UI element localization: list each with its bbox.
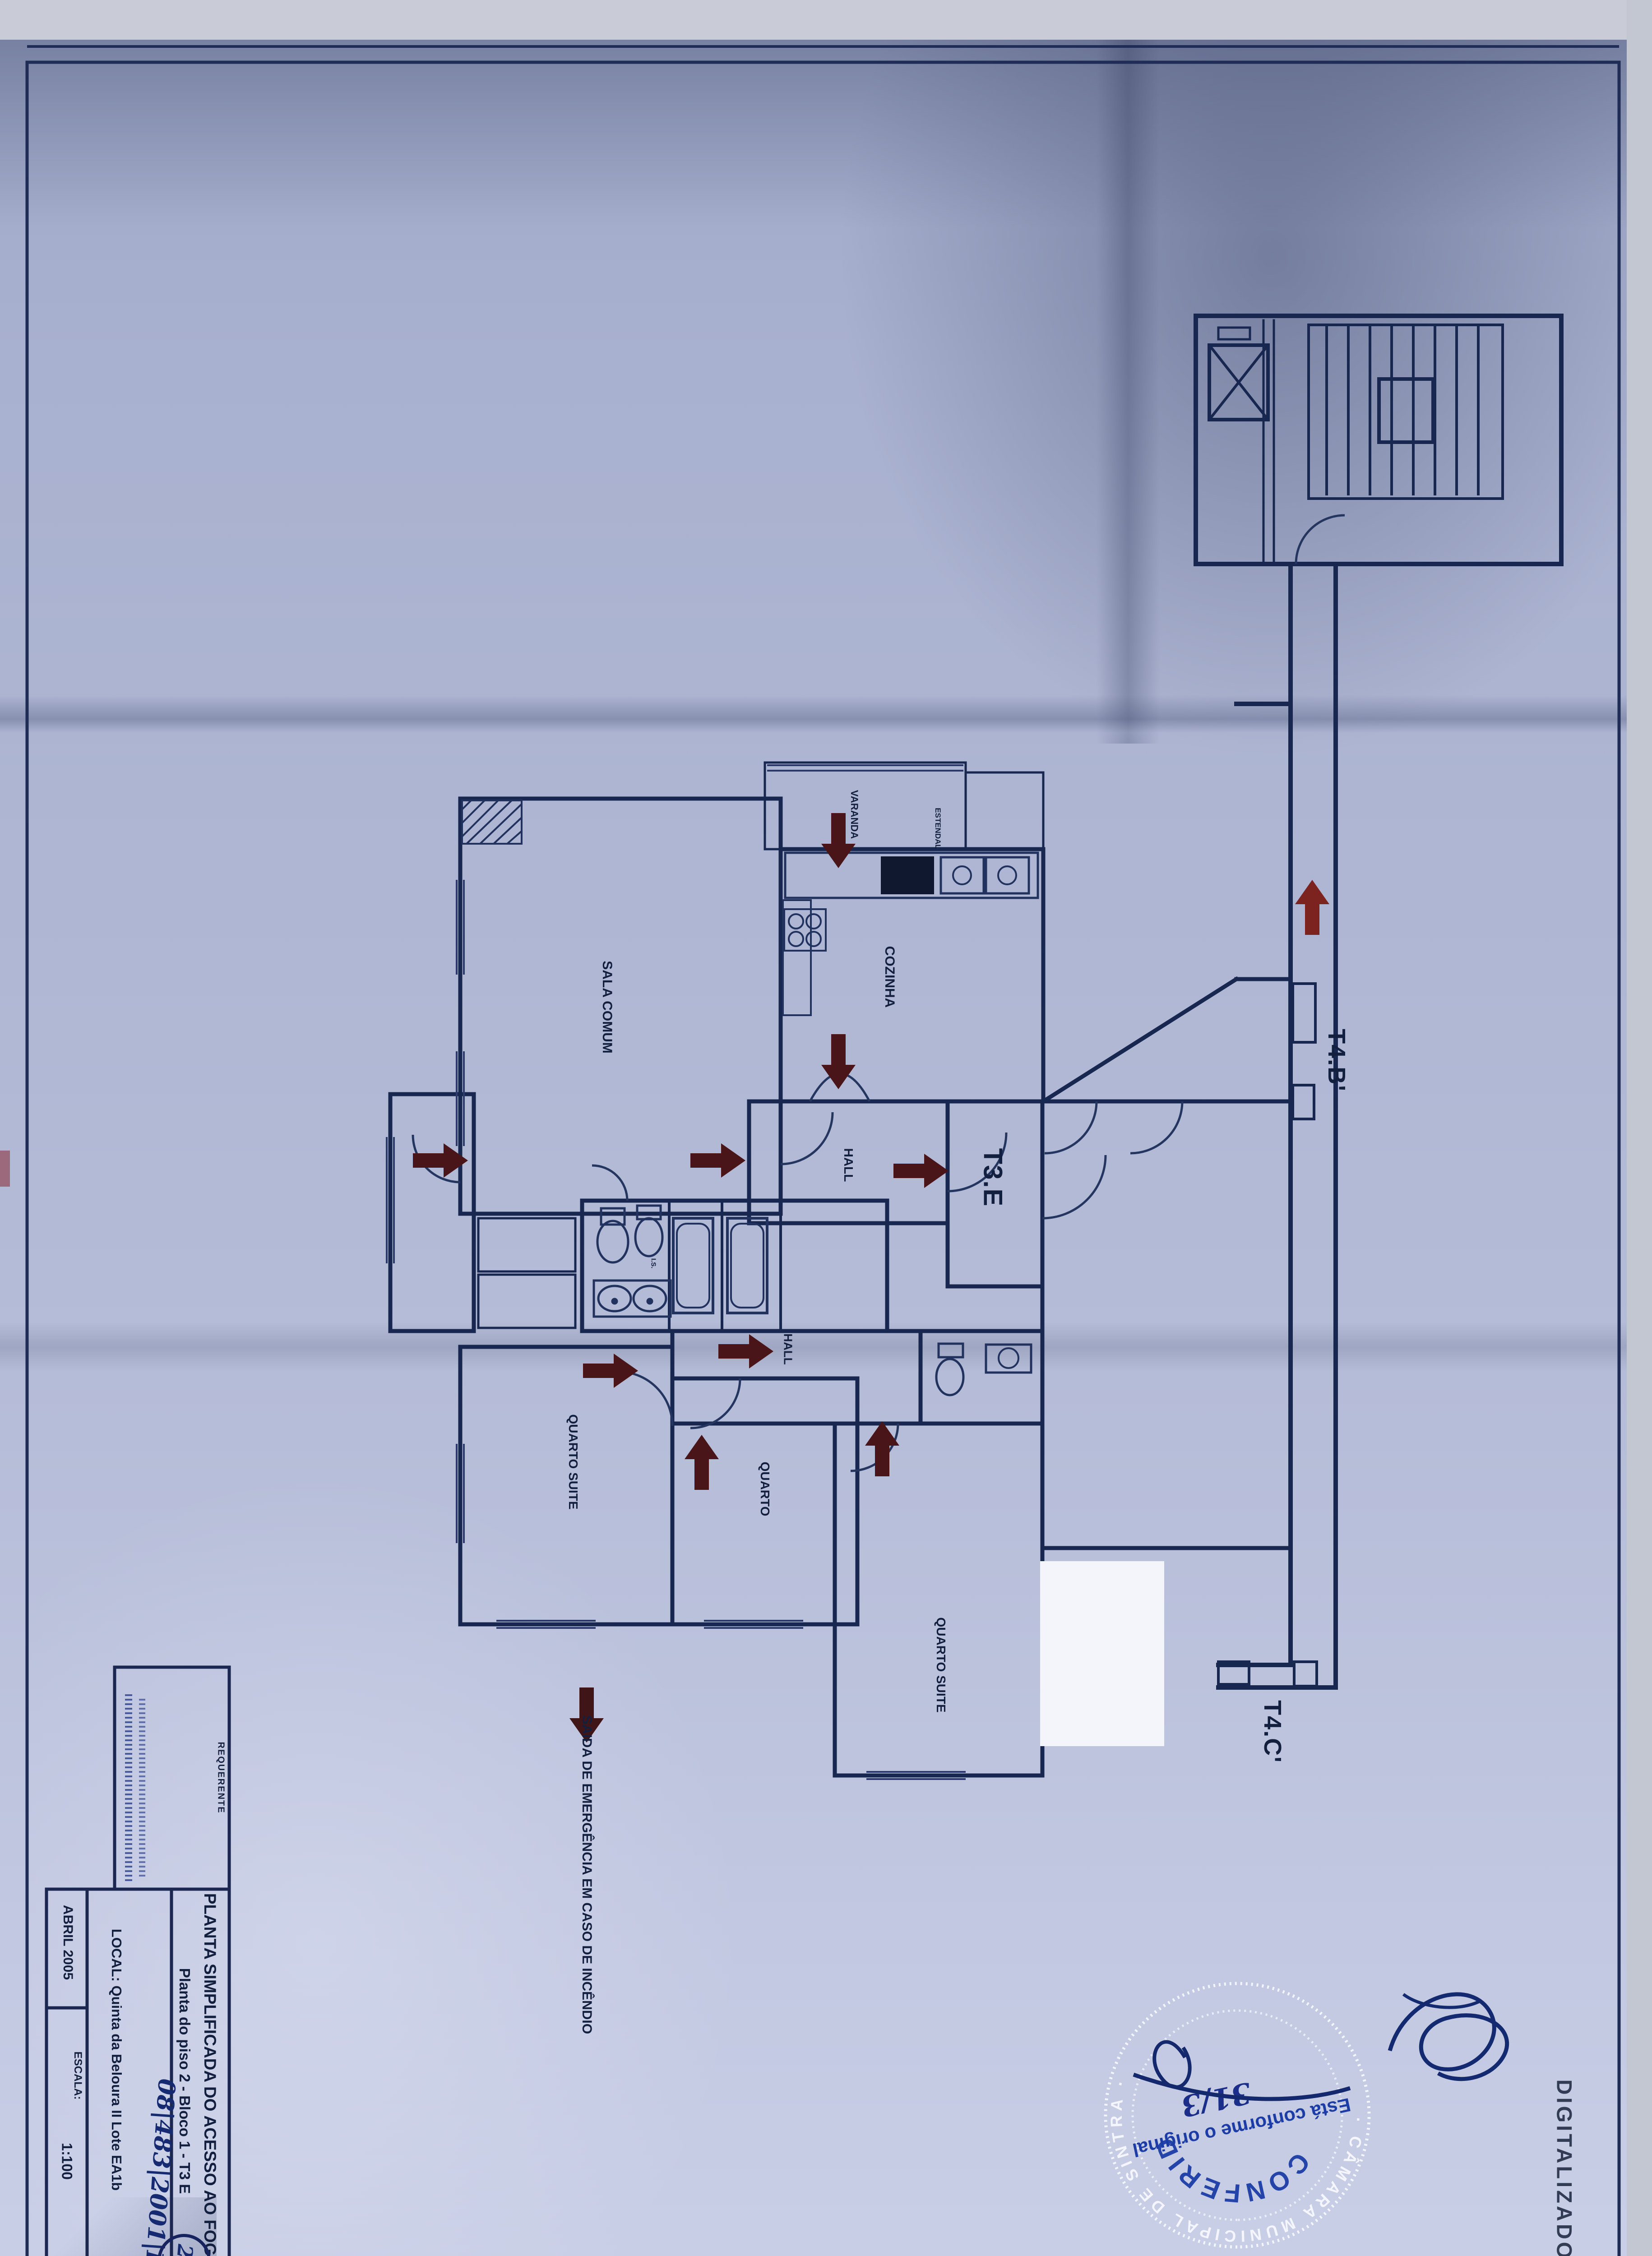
unit-label-t4b: T4.B' <box>1323 1029 1351 1092</box>
escape-arrow-icon <box>1295 880 1329 935</box>
room-label-estendal: ESTENDAL <box>933 808 942 849</box>
stove-icon <box>881 856 934 894</box>
applicant-logo-marks <box>125 1694 132 1884</box>
escape-arrow-icon <box>821 1034 856 1089</box>
escape-arrow-icon <box>893 1154 949 1188</box>
stair-core-and-corridor <box>1196 316 1561 1687</box>
bathtub-icon <box>673 1218 713 1313</box>
room-label-quarto-suite-left: QUARTO SUITE <box>566 1414 580 1509</box>
titleblock-scale-label: ESCALA: <box>71 2052 84 2100</box>
titleblock-title: PLANTA SIMPLIFICADA DO ACESSO AO FOGO <box>200 1893 219 2256</box>
unit-label-t4c: T4.C' <box>1259 1700 1286 1763</box>
room-label-is: I.S. <box>650 1258 657 1269</box>
kitchen-fixtures <box>783 853 1038 1015</box>
escape-arrow-icon <box>685 1435 719 1490</box>
vanity-icon <box>594 1281 671 1317</box>
escape-arrows <box>413 813 1329 1743</box>
room-label-varanda: VARANDA <box>848 790 860 839</box>
escape-arrow-icon <box>690 1143 745 1178</box>
scanned-blueprint-sheet: · CÂMARA MUNICIPAL DE SINTRA · CONFERIDO… <box>0 0 1652 2256</box>
emergency-exit-note: SAIDA DE EMERGÊNCIA EM CASO DE INCÊNDIO <box>579 1715 594 2034</box>
room-label-hall-lower: HALL <box>781 1333 795 1364</box>
bathtub-icon <box>727 1218 767 1313</box>
room-label-hall-upper: HALL <box>841 1148 856 1182</box>
titleblock-local: LOCAL: Quinta da Beloura II Lote EA1b <box>108 1929 125 2191</box>
municipal-stamp: · CÂMARA MUNICIPAL DE SINTRA · CONFERIDO… <box>1106 1983 1369 2247</box>
escape-arrow-icon <box>718 1334 773 1368</box>
room-label-quarto: QUARTO <box>758 1462 772 1516</box>
bathroom-fixtures <box>594 1206 1031 1395</box>
unit-label-t3e: T3.E <box>978 1148 1008 1207</box>
floorplan-drawing: · CÂMARA MUNICIPAL DE SINTRA · CONFERIDO… <box>0 0 1652 2256</box>
signature-scribble <box>1390 1994 1507 2079</box>
escape-arrow-icon <box>583 1354 638 1388</box>
room-label-cozinha: COZINHA <box>882 946 897 1008</box>
titleblock-date: ABRIL 2005 <box>60 1905 75 1980</box>
escape-arrow-icon <box>865 1421 899 1476</box>
handwritten-circled-text: 2D <box>171 2243 198 2256</box>
applicant-logo-marks <box>139 1699 145 1879</box>
room-label-quarto-suite-lower: QUARTO SUITE <box>934 1617 948 1712</box>
room-label-sala-comum: SALA COMUM <box>599 961 615 1054</box>
titleblock-requerente-label: REQUERENTE <box>216 1742 226 1814</box>
hatch-corner <box>462 800 522 844</box>
white-redaction-patch <box>1040 1561 1164 1746</box>
toilet-icon <box>601 1208 625 1225</box>
digitalizado-watermark: DIGITALIZADO <box>1552 2080 1577 2256</box>
titleblock-scale-value: 1:100 <box>59 2143 75 2180</box>
